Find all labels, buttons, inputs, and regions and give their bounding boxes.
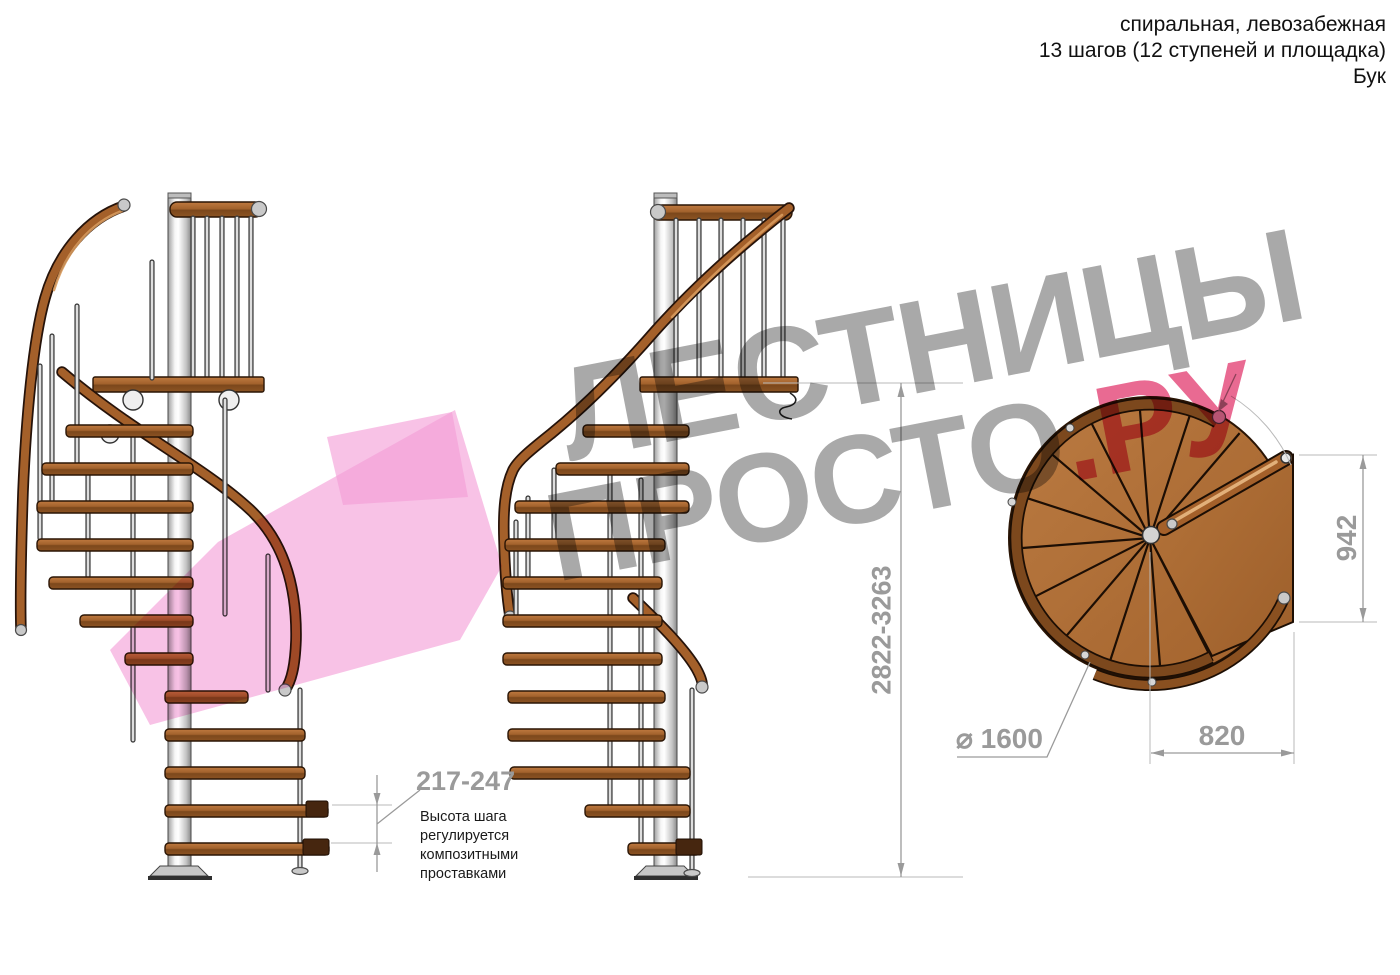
dim-total-height-label: 2822-3263 [867,565,898,694]
technical-drawing [0,0,1400,975]
platform-handrail [170,202,262,217]
composite-spacer [306,801,328,817]
dim-step-height-label: 217-247 [416,766,515,797]
spec-steps: 13 шагов (12 ступеней и площадка) [1039,38,1386,64]
mount-plate [219,390,239,410]
dim-plan-height-label: 942 [1331,515,1363,562]
platform-board [93,377,264,392]
step-height-note: Высота шага регулируется композитными пр… [420,808,518,884]
dim-diameter-label: ⌀ 1600 [956,722,1043,755]
drawing-page: ЛЕСТНИЦЫ ПРОСТО.РУ 217-247 2822-3263 942… [0,0,1400,975]
column-base-flange [150,866,208,876]
spiral-handrail-left [21,206,124,630]
composite-spacer [303,839,329,855]
spec-material: Бук [1039,64,1386,90]
platform-board [640,377,798,392]
composite-spacer [676,839,702,855]
mount-plate [123,390,143,410]
mount-bracket [780,393,796,419]
front-side-view [503,193,798,880]
left-side-view [16,193,330,880]
product-spec-header: спиральная, левозабежная 13 шагов (12 ст… [1039,12,1386,90]
spiral-handrail [504,208,789,616]
handrail-end-cap [252,202,267,217]
plan-column-hub [1143,527,1160,544]
spec-type: спиральная, левозабежная [1039,12,1386,38]
dim-plan-width-label: 820 [1199,720,1246,752]
